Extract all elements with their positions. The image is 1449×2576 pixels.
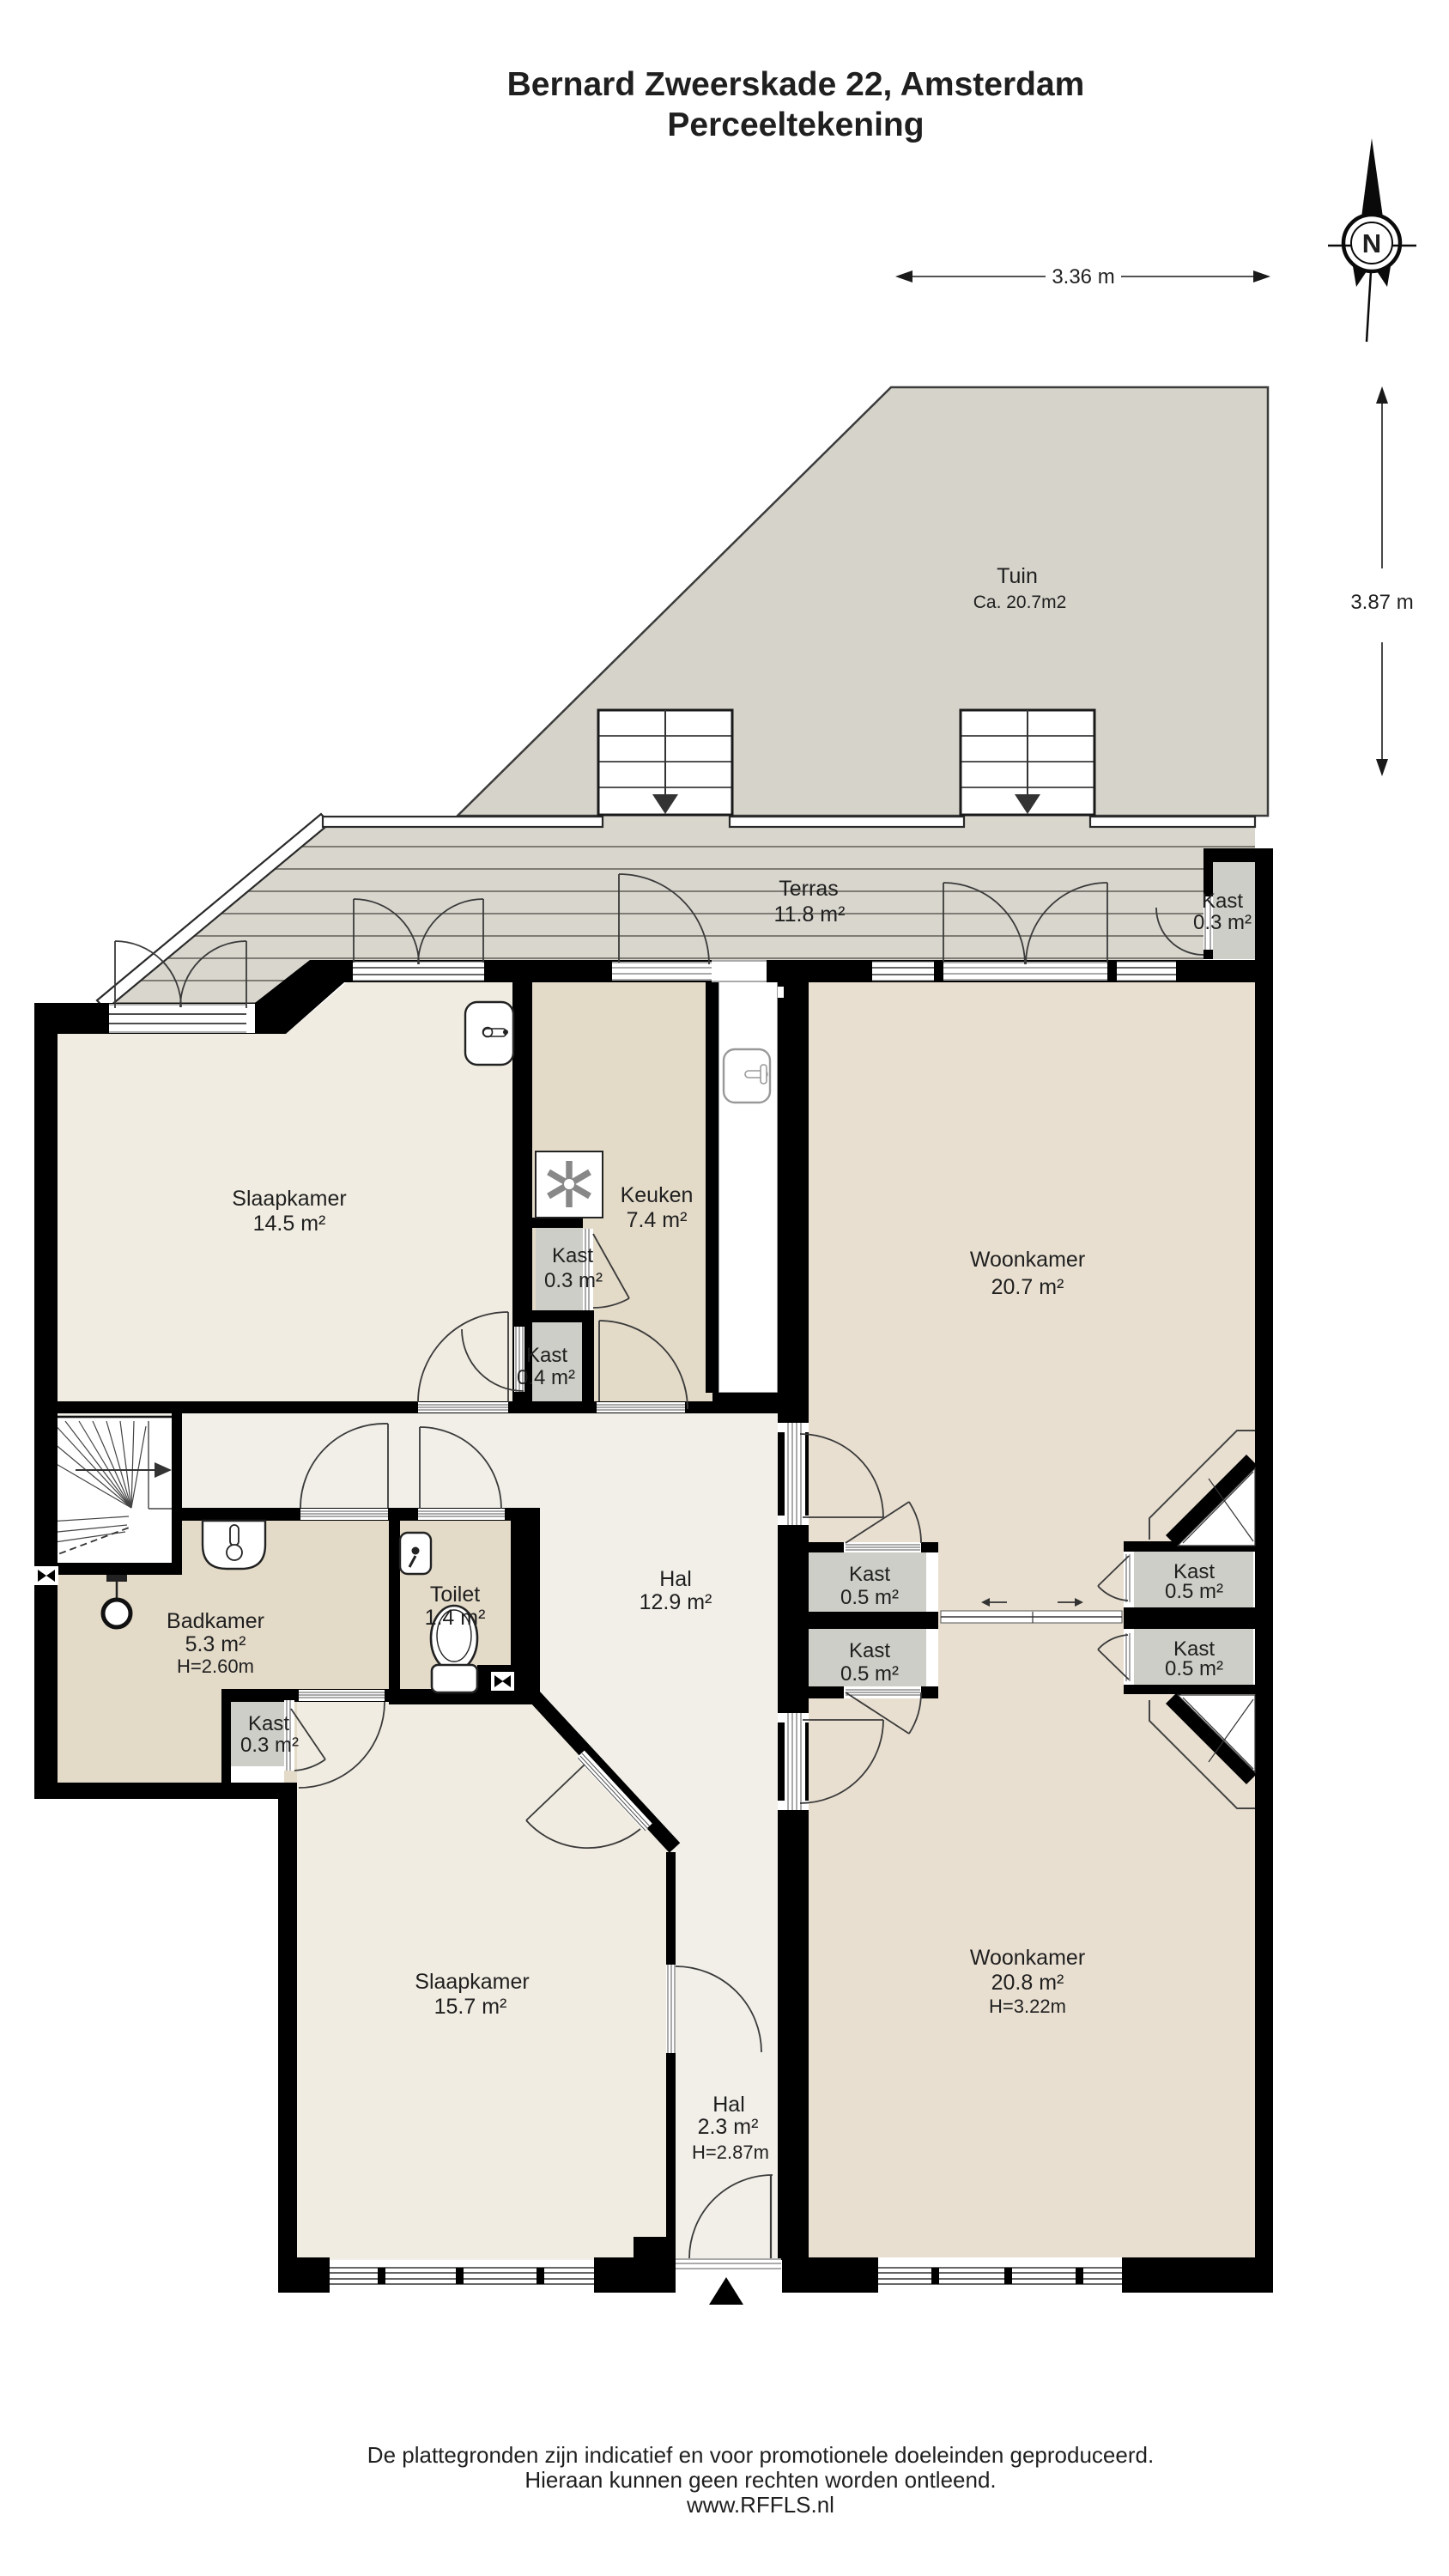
svg-text:2.3 m²: 2.3 m²: [698, 2115, 759, 2139]
svg-text:Kast: Kast: [526, 1344, 567, 1367]
svg-text:15.7 m²: 15.7 m²: [434, 1995, 507, 2019]
svg-text:20.8 m²: 20.8 m²: [991, 1971, 1064, 1995]
svg-text:www.RFFLS.nl: www.RFFLS.nl: [686, 2492, 834, 2518]
svg-text:0.4 m²: 0.4 m²: [517, 1366, 575, 1389]
svg-text:Slaapkamer: Slaapkamer: [415, 1970, 529, 1994]
svg-text:Kast: Kast: [849, 1639, 890, 1662]
svg-text:11.8 m²: 11.8 m²: [774, 902, 846, 927]
svg-text:Hieraan kunnen geen rechten wo: Hieraan kunnen geen rechten worden ontle…: [524, 2467, 996, 2493]
svg-text:Tuin: Tuin: [997, 564, 1038, 588]
svg-text:12.9 m²: 12.9 m²: [640, 1590, 712, 1614]
svg-text:Bernard Zweerskade 22, Amsterd: Bernard Zweerskade 22, Amsterdam: [507, 66, 1085, 103]
svg-text:0.3 m²: 0.3 m²: [1193, 911, 1252, 934]
svg-text:Slaapkamer: Slaapkamer: [232, 1187, 346, 1211]
svg-text:Kast: Kast: [1202, 890, 1243, 913]
svg-text:Toilet: Toilet: [430, 1583, 480, 1607]
svg-text:H=3.22m: H=3.22m: [989, 1996, 1066, 2017]
svg-text:Terras: Terras: [779, 877, 838, 901]
svg-text:Woonkamer: Woonkamer: [970, 1248, 1085, 1272]
svg-text:N: N: [1362, 228, 1381, 258]
svg-text:20.7 m²: 20.7 m²: [991, 1275, 1064, 1299]
svg-text:Hal: Hal: [712, 2093, 745, 2117]
svg-text:0.5 m²: 0.5 m²: [840, 1662, 899, 1686]
svg-text:Badkamer: Badkamer: [167, 1609, 264, 1633]
svg-text:0.5 m²: 0.5 m²: [840, 1586, 899, 1609]
svg-text:Perceeltekening: Perceeltekening: [667, 106, 924, 143]
svg-text:Woonkamer: Woonkamer: [970, 1946, 1085, 1970]
svg-text:0.5 m²: 0.5 m²: [1165, 1657, 1223, 1680]
svg-text:Kast: Kast: [552, 1244, 593, 1267]
svg-text:3.36 m: 3.36 m: [1052, 265, 1114, 289]
svg-text:0.3 m²: 0.3 m²: [240, 1734, 299, 1757]
svg-text:Hal: Hal: [659, 1567, 692, 1591]
svg-text:De plattegronden zijn indicati: De plattegronden zijn indicatief en voor…: [367, 2442, 1154, 2468]
svg-text:0.3 m²: 0.3 m²: [544, 1269, 603, 1292]
svg-text:14.5 m²: 14.5 m²: [253, 1212, 326, 1236]
svg-text:1.4 m²: 1.4 m²: [425, 1606, 486, 1630]
svg-text:Kast: Kast: [849, 1563, 890, 1586]
svg-text:Keuken: Keuken: [621, 1183, 694, 1207]
svg-text:Kast: Kast: [248, 1712, 289, 1735]
svg-text:3.87 m: 3.87 m: [1350, 591, 1413, 614]
svg-text:H=2.87m: H=2.87m: [692, 2142, 769, 2163]
svg-text:Ca. 20.7m2: Ca. 20.7m2: [973, 592, 1067, 612]
svg-text:0.5 m²: 0.5 m²: [1165, 1580, 1223, 1603]
svg-text:H=2.60m: H=2.60m: [177, 1656, 254, 1677]
svg-text:7.4 m²: 7.4 m²: [627, 1208, 688, 1232]
svg-text:5.3 m²: 5.3 m²: [185, 1632, 246, 1656]
